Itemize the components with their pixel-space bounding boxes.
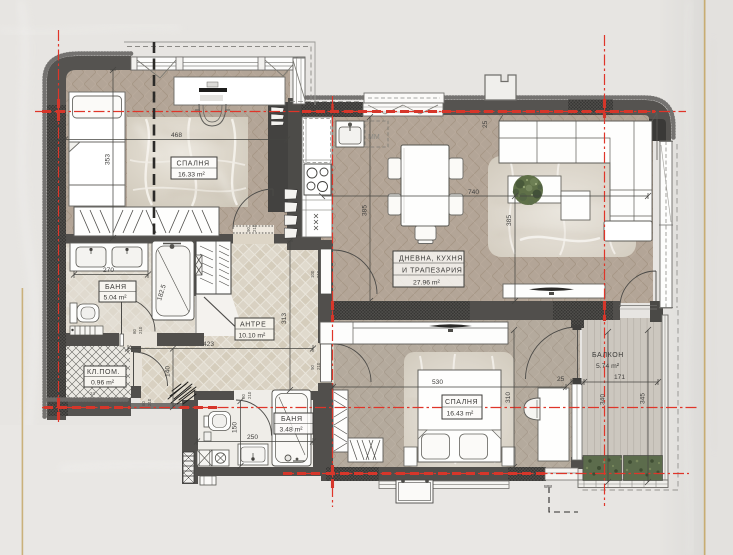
svg-text:210: 210 — [252, 224, 257, 232]
svg-text:530: 530 — [432, 379, 443, 386]
svg-text:210: 210 — [138, 326, 143, 334]
svg-text:423: 423 — [203, 341, 214, 348]
svg-text:ww: ww — [543, 484, 552, 490]
svg-text:И ТРАПЕЗАРИЯ: И ТРАПЕЗАРИЯ — [402, 268, 462, 275]
svg-text:740: 740 — [468, 189, 479, 196]
svg-text:3.48 m²: 3.48 m² — [280, 427, 304, 434]
svg-text:468: 468 — [171, 132, 182, 139]
svg-text:150: 150 — [232, 422, 239, 433]
svg-text:5.04 m²: 5.04 m² — [104, 295, 128, 302]
svg-text:СПАЛНЯ: СПАЛНЯ — [445, 399, 478, 406]
svg-text:340: 340 — [600, 394, 607, 405]
svg-text:171: 171 — [614, 374, 625, 381]
svg-text:БАЛКОН: БАЛКОН — [592, 352, 624, 359]
svg-text:210: 210 — [247, 391, 252, 399]
svg-text:25: 25 — [557, 376, 565, 383]
svg-text:313: 313 — [281, 313, 288, 324]
svg-text:210: 210 — [316, 270, 321, 278]
svg-text:КЛ.ПОМ.: КЛ.ПОМ. — [87, 369, 120, 376]
svg-text:270: 270 — [103, 267, 114, 274]
svg-text:60: 60 — [141, 401, 146, 406]
svg-text:385: 385 — [506, 215, 513, 226]
svg-text:БАНЯ: БАНЯ — [281, 416, 303, 423]
svg-text:385: 385 — [362, 205, 369, 216]
svg-text:140: 140 — [165, 366, 172, 377]
svg-text:16.43 m²: 16.43 m² — [447, 411, 475, 418]
svg-text:210: 210 — [147, 398, 152, 406]
svg-text:ДНЕВНА, КУХНЯ: ДНЕВНА, КУХНЯ — [399, 256, 463, 263]
svg-text:250: 250 — [247, 434, 258, 441]
svg-text:90: 90 — [246, 227, 251, 232]
svg-text:345: 345 — [640, 393, 647, 404]
svg-text:БАНЯ: БАНЯ — [105, 284, 127, 291]
svg-text:90: 90 — [310, 365, 315, 370]
svg-text:5.74 m²: 5.74 m² — [596, 363, 620, 370]
svg-text:100: 100 — [310, 270, 315, 278]
svg-text:СПАЛНЯ: СПАЛНЯ — [177, 161, 210, 168]
svg-text:10.10 m²: 10.10 m² — [239, 333, 267, 340]
svg-text:80: 80 — [241, 394, 246, 399]
svg-text:80: 80 — [132, 329, 137, 334]
svg-text:0.96 m²: 0.96 m² — [91, 380, 115, 387]
svg-text:210: 210 — [316, 362, 321, 370]
svg-text:16.33 m²: 16.33 m² — [178, 172, 206, 179]
svg-text:310: 310 — [505, 392, 512, 403]
svg-text:353: 353 — [105, 154, 112, 165]
svg-text:24: 24 — [90, 391, 95, 396]
svg-text:АНТРЕ: АНТРЕ — [240, 322, 266, 329]
svg-text:27.96 m²: 27.96 m² — [413, 280, 441, 287]
svg-text:25: 25 — [482, 120, 489, 128]
